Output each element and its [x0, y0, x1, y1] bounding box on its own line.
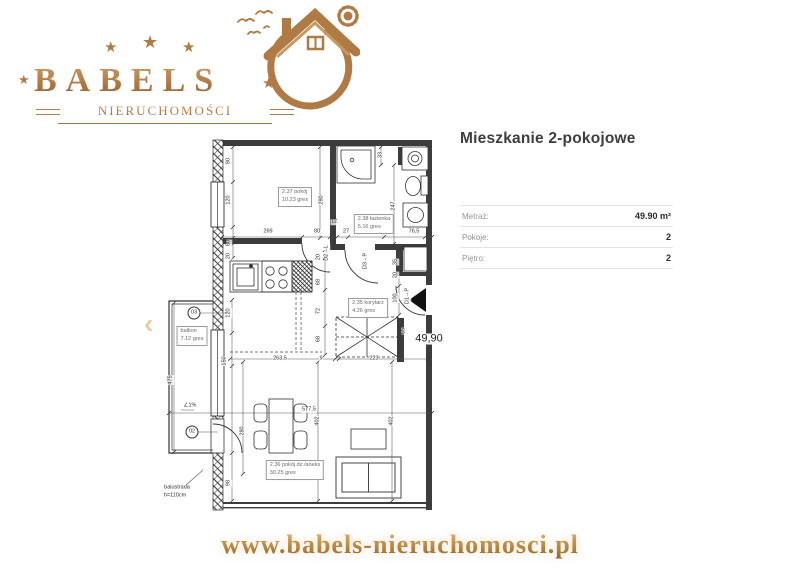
dimension-label: 120 — [226, 308, 232, 318]
floorplan-labels: 2698012279076,58012060202802068726833247… — [150, 133, 450, 518]
dimension-label: 475 — [168, 375, 174, 385]
dimension-label: 120 — [226, 195, 232, 205]
dimension-label: D1→P — [405, 287, 411, 304]
dimension-label: 402 — [389, 416, 395, 426]
dimension-label: 65 — [401, 327, 407, 334]
dimension-label: 68 — [316, 278, 322, 285]
star-icon: ★ — [104, 38, 117, 56]
detail-label: Metraż: — [462, 212, 489, 221]
star-icon: ★ — [142, 32, 158, 53]
dimension-label: D2→L — [324, 245, 330, 262]
room-label: 2.35 korytarz4.26 gres — [348, 298, 388, 318]
dimension-label: 33 — [378, 151, 384, 158]
door-tag-02: 02 — [186, 426, 199, 439]
detail-label: Pokoje: — [462, 233, 489, 242]
dimension-label: 9 — [319, 356, 323, 362]
dimension-label: 80 — [313, 229, 320, 235]
detail-value: 49.90 m² — [635, 211, 671, 221]
detail-value: 2 — [666, 232, 671, 242]
details-table: Metraż: 49.90 m² Pokoje: 2 Piętro: 2 — [460, 205, 673, 269]
star-icon: ★ — [182, 38, 195, 56]
detail-value: 2 — [666, 253, 671, 263]
house-logo-icon — [230, 4, 360, 124]
room-label: 2.36 pokój dz./aneks30.25 gres — [266, 460, 324, 480]
dimension-label: 280 — [240, 426, 246, 436]
slope-label: ∠1% — [184, 403, 197, 409]
dimension-label: 263,5 — [273, 356, 288, 362]
dimension-label: 60 — [226, 239, 232, 246]
dimension-label: 269 — [263, 229, 273, 235]
dimension-label: 100 — [393, 293, 399, 303]
detail-row-pietro: Piętro: 2 — [460, 248, 673, 269]
dimension-label: 280 — [319, 195, 325, 205]
birds-icon — [238, 11, 272, 34]
website-url[interactable]: www.babels-nieruchomosci.pl — [221, 530, 579, 559]
room-label: 2.37 pokój10.23 gres — [278, 187, 312, 207]
room-label: balkon7.12 gres — [177, 326, 208, 346]
dimension-label: 20 — [226, 252, 232, 259]
dimension-label: 98 — [226, 479, 232, 486]
detail-row-metraz: Metraż: 49.90 m² — [460, 206, 673, 227]
dimension-label: 76,5 — [408, 229, 420, 235]
dimension-label: 72 — [316, 307, 322, 314]
dimension-label: 247 — [391, 201, 397, 211]
brand-name: BABELS — [34, 62, 222, 100]
balustrade-label: balustrada — [164, 485, 190, 491]
dimension-label: 35 — [393, 258, 399, 265]
dimension-label: 402 — [315, 416, 321, 426]
total-area-label: 49,90 — [415, 334, 443, 345]
dimension-label: 20 — [316, 253, 322, 260]
agency-logo: ★ ★ ★ ★ ★ BABELS NIERUCHOMOŚCI — [18, 4, 358, 129]
dimension-label: 150 — [222, 356, 228, 366]
page-title: Mieszkanie 2-pokojowe — [460, 130, 673, 148]
listing-panel: Mieszkanie 2-pokojowe Metraż: 49.90 m² P… — [460, 130, 673, 269]
star-icon: ★ — [18, 72, 30, 88]
detail-row-pokoje: Pokoje: 2 — [460, 227, 673, 248]
dimension-label: 80 — [226, 157, 232, 164]
sun-icon — [339, 7, 357, 25]
footer: www.babels-nieruchomosci.pl — [0, 530, 800, 560]
room-label: 2.38 łazienka5.16 gres — [354, 214, 394, 234]
dimension-label: 20 — [393, 271, 399, 278]
dimension-label: 223 — [369, 356, 379, 362]
dimension-label: 577,5 — [302, 407, 317, 413]
floorplan: 2698012279076,58012060202802068726833247… — [150, 133, 450, 518]
detail-label: Piętro: — [462, 254, 485, 263]
dimension-label: 68 — [316, 335, 322, 342]
balustrade-height-label: h=110cm — [164, 493, 186, 499]
dimension-label: 27 — [342, 229, 349, 235]
dimension-label: 12 — [330, 219, 337, 225]
dimension-label: D3→P — [363, 252, 369, 269]
window-tag-03: 03 — [188, 307, 201, 320]
